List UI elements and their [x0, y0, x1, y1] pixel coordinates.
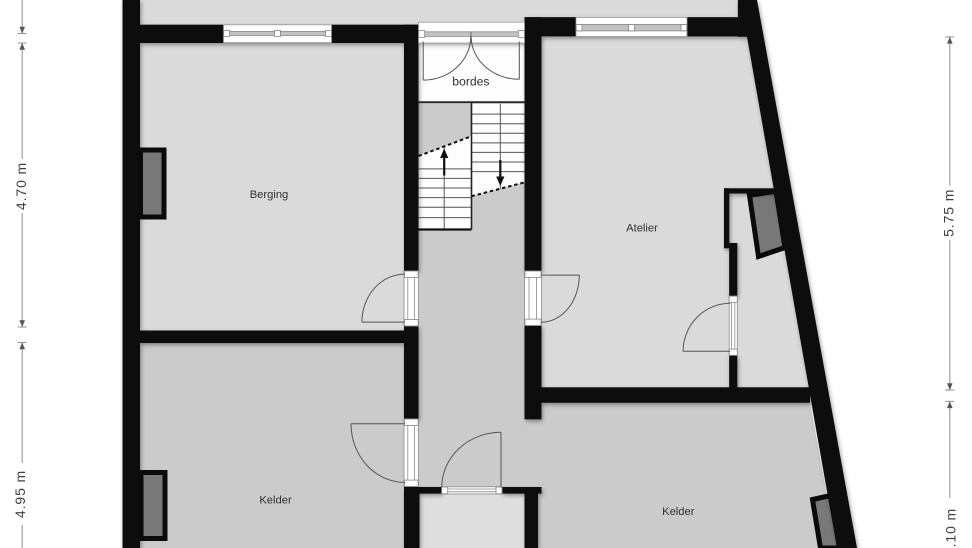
- svg-text:bordes: bordes: [452, 74, 489, 88]
- svg-text:5.75 m: 5.75 m: [941, 189, 957, 237]
- svg-text:Atelier: Atelier: [626, 222, 658, 234]
- svg-text:Kelder: Kelder: [662, 506, 695, 518]
- svg-text:4.95 m: 4.95 m: [12, 470, 28, 518]
- svg-text:4.10 m: 4.10 m: [943, 508, 959, 548]
- svg-text:Kelder: Kelder: [259, 495, 292, 507]
- svg-text:4.70 m: 4.70 m: [13, 162, 29, 210]
- svg-text:Berging: Berging: [250, 189, 289, 201]
